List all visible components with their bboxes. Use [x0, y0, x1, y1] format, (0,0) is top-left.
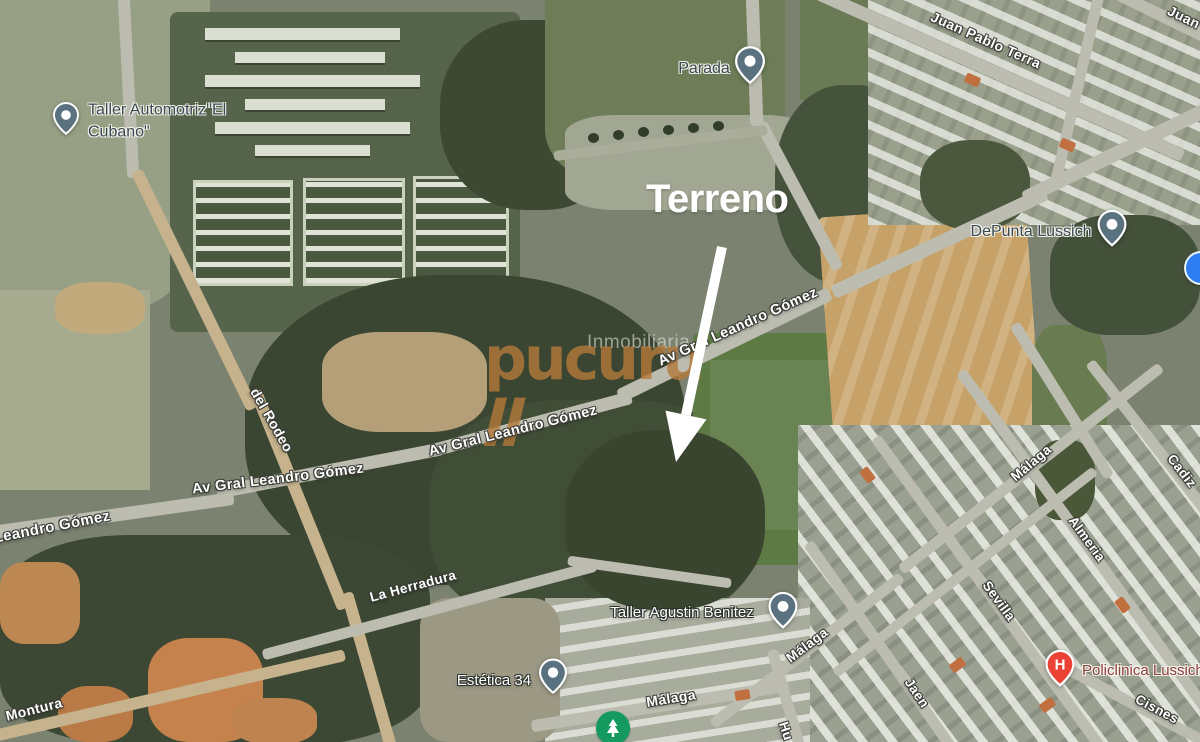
annotation-arrow: [630, 240, 740, 475]
terrain-patch: [215, 122, 410, 134]
poi-pin-depunta-lussich[interactable]: [1098, 210, 1127, 247]
poi-label-parada[interactable]: Parada: [678, 58, 730, 80]
terrain-patch: [303, 178, 405, 286]
poi-label-line: Policlinica Lussich: [1082, 661, 1200, 681]
terrain-patch: [245, 99, 385, 110]
tree-canopy-dot: [688, 123, 699, 133]
hospital-pin-policlinica-lussich[interactable]: H: [1046, 650, 1075, 687]
poi-label-line: Parada: [678, 58, 730, 80]
poi-label-taller-automotriz-el-cubano[interactable]: Taller Automotriz"ElCubano": [88, 99, 226, 142]
terrain-patch: [322, 332, 487, 432]
poi-label-line: Estética 34: [457, 671, 531, 691]
terrain-patch: [193, 180, 293, 286]
poi-pin-estetica-34[interactable]: [539, 659, 567, 694]
svg-text:H: H: [1055, 657, 1066, 674]
satellite-map[interactable]: Juan Pablo TerraJuanAv Gral Leandro Góme…: [0, 0, 1200, 742]
tree-canopy-dot: [713, 121, 724, 131]
tree-icon[interactable]: [596, 711, 630, 742]
terrain-patch: [232, 698, 317, 742]
poi-label-depunta-lussich[interactable]: DePunta Lussich: [971, 221, 1092, 243]
poi-label-line: Taller Agustin Benitez: [610, 603, 753, 623]
tree-canopy-dot: [588, 133, 599, 143]
tree-canopy-dot: [663, 125, 674, 135]
terrain-patch: [255, 145, 370, 156]
poi-label-line: Cubano": [88, 121, 226, 143]
poi-pin-parada[interactable]: [735, 46, 765, 84]
poi-label-estetica-34[interactable]: Estética 34: [457, 671, 531, 691]
annotation-terreno-title: Terreno: [646, 177, 788, 222]
terrain-patch: [205, 75, 420, 87]
terrain-patch: [0, 562, 80, 644]
terrain-patch: [55, 282, 145, 334]
poi-label-policlinica-lussich[interactable]: Policlinica Lussich: [1082, 661, 1200, 681]
poi-label-line: DePunta Lussich: [971, 221, 1092, 243]
tree-canopy-dot: [613, 130, 624, 140]
poi-pin-taller-agustin-benitez[interactable]: [769, 592, 798, 629]
tree-canopy-dot: [638, 127, 649, 137]
poi-label-taller-agustin-benitez[interactable]: Taller Agustin Benitez: [610, 603, 753, 623]
poi-pin-taller-automotriz-el-cubano[interactable]: [53, 102, 79, 135]
terrain-patch: [235, 52, 385, 63]
terrain-patch: [205, 28, 400, 40]
terrain-patch: [920, 140, 1030, 230]
poi-label-line: Taller Automotriz"El: [88, 99, 226, 121]
